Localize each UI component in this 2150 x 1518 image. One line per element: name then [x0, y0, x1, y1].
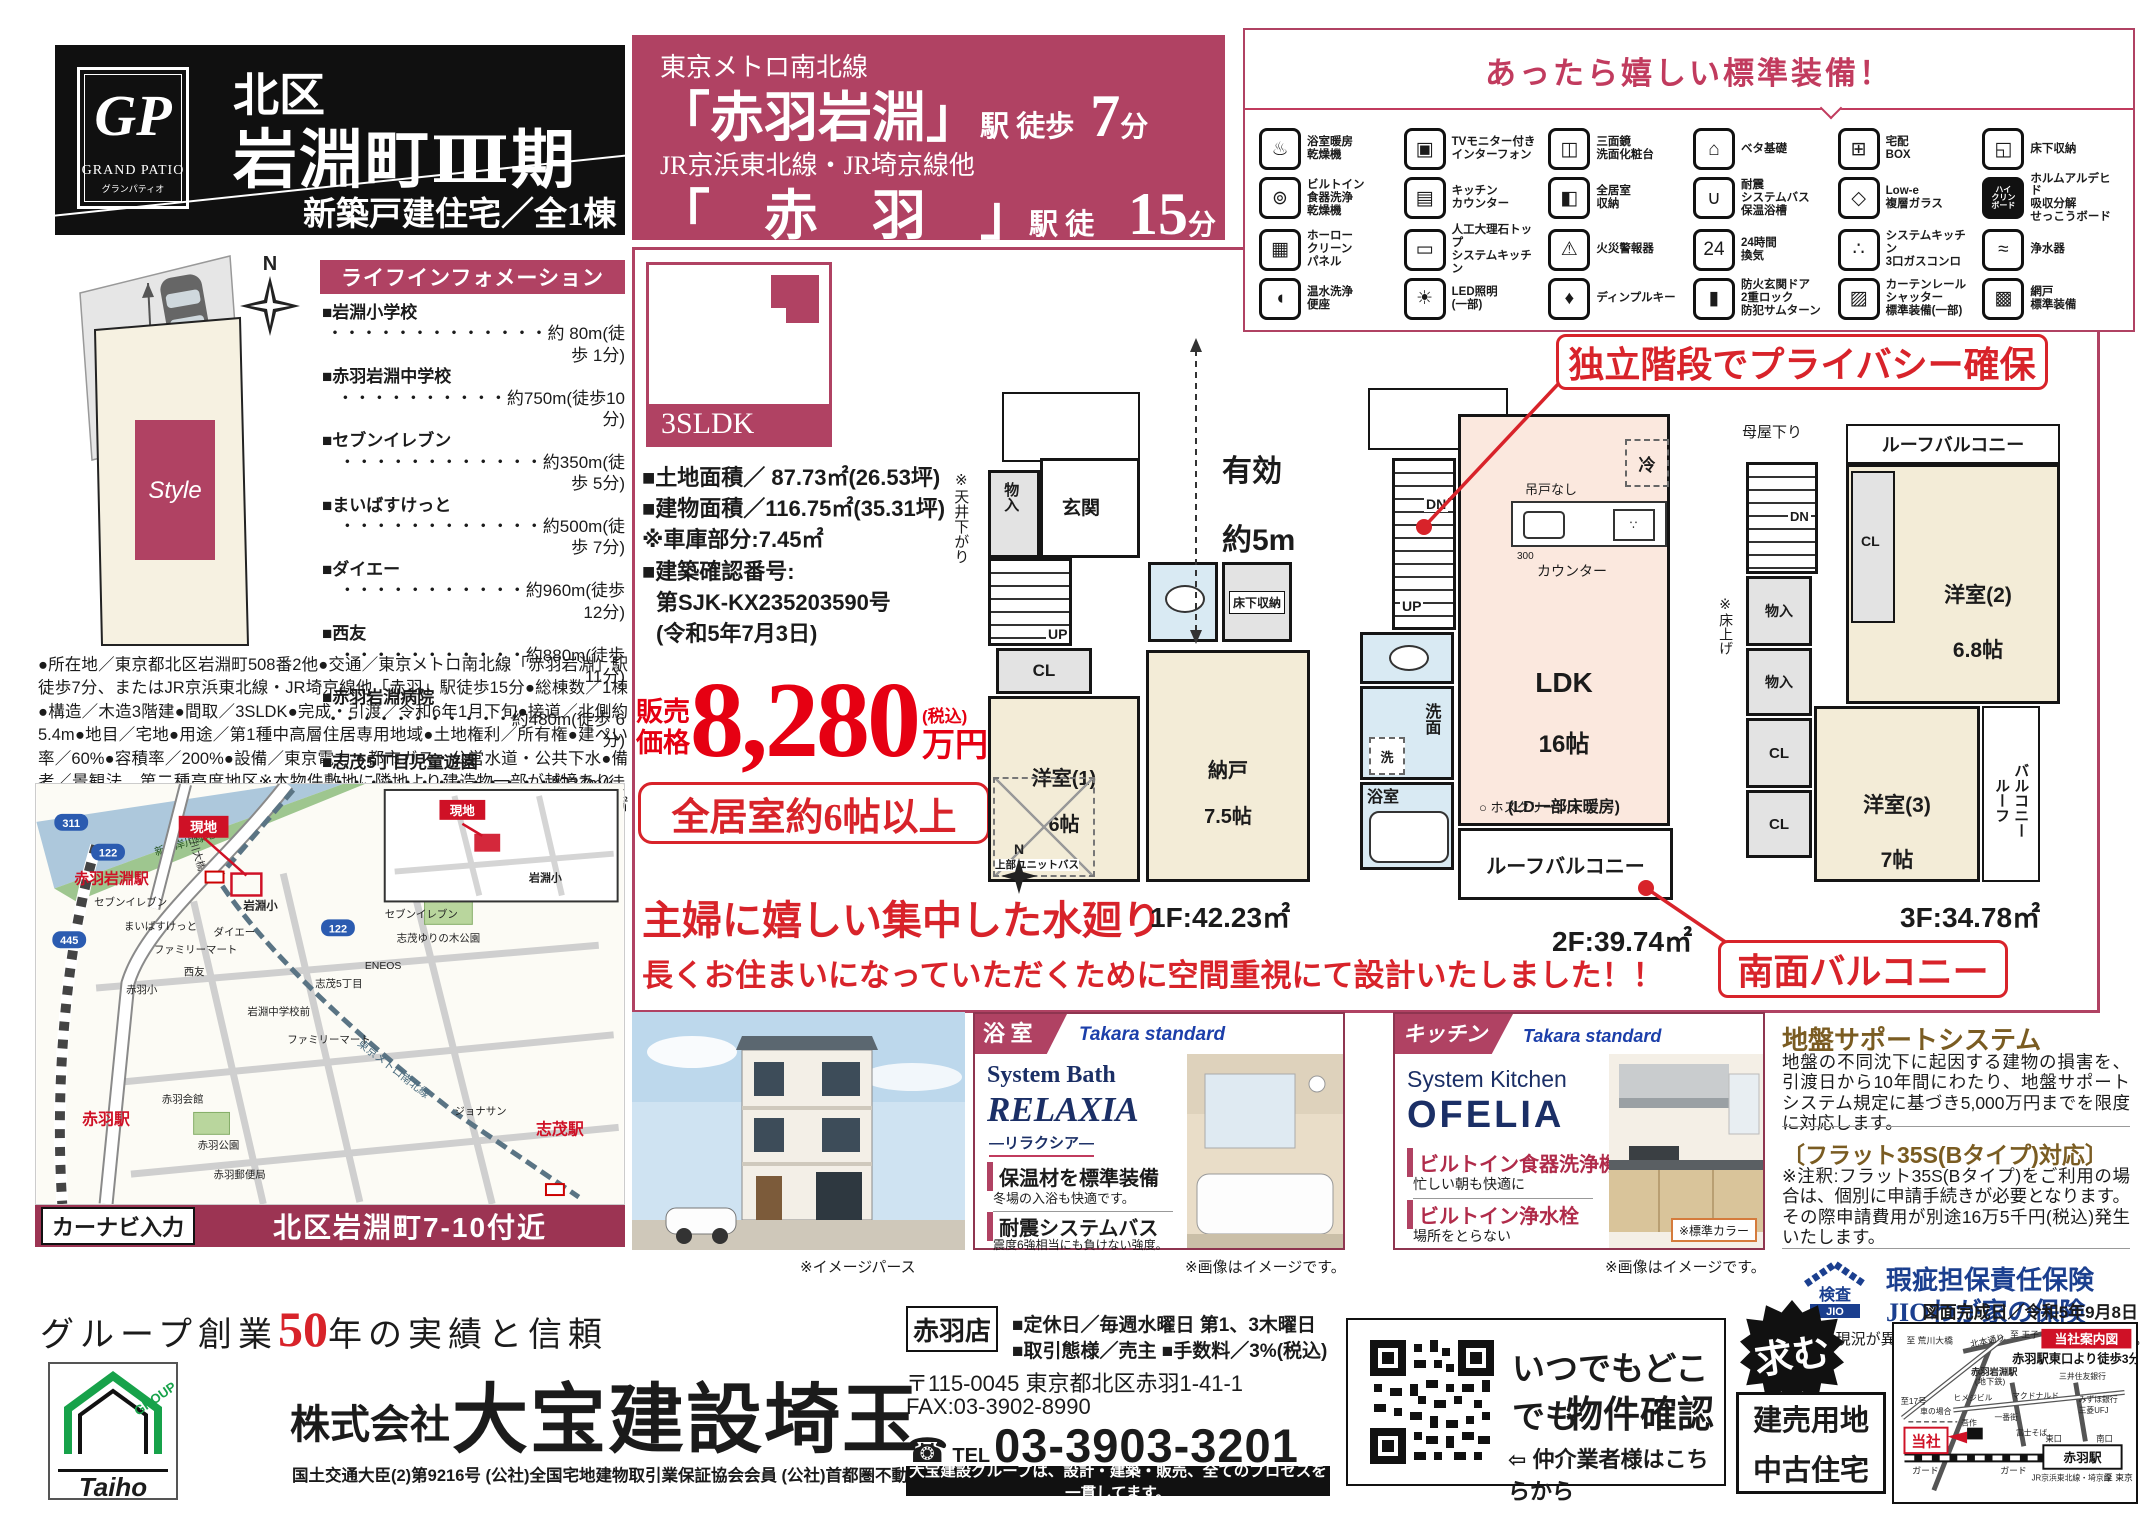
company-prefix: 株式会社 — [290, 1392, 450, 1450]
qr-code — [1366, 1336, 1498, 1468]
site-plan: 約5.4m公道 Style N — [70, 248, 320, 648]
f3-cl1-label: CL — [1769, 745, 1789, 762]
life-dist: ・・・・・・・・・・約750m(徒歩10分) — [322, 388, 625, 431]
price-tax: (税込) — [922, 708, 988, 727]
f2-hoscreen-label: ○ ホスクリーン ○ — [1479, 801, 1579, 816]
kitchen-feature-1-desc: 忙しい朝も快適に — [1413, 1174, 1593, 1199]
equipment-label: 床下収納 — [2030, 143, 2076, 156]
curtain-rail-shutter-icon: ▨ — [1838, 278, 1880, 320]
dimple-key-icon: ♦ — [1548, 278, 1590, 320]
equipment-label: 火災警報器 — [1596, 243, 1654, 256]
equipment-label: 宅配 BOX — [1886, 136, 1911, 162]
bath-feature-1: 保温材を標準装備 — [987, 1162, 1159, 1191]
navi-label: カーナビ入力 — [41, 1207, 195, 1245]
map-label: 赤羽岩淵駅 — [74, 870, 149, 888]
f3-dn-label: DN — [1788, 510, 1811, 525]
map-label: 志茂ゆりの木公園 — [397, 931, 481, 944]
equipment-label: システムキッチン 3口ガスコンロ — [1886, 230, 1977, 269]
map-label: ジョナサン — [454, 1105, 506, 1117]
cmap-spot: 至 王子 — [2010, 1330, 2039, 1340]
f3-cl-1: CL — [1746, 718, 1812, 788]
f3-roof-balcony-label: ルーフバルコニー — [1882, 431, 2025, 457]
equipment-label: ビルトイン 食器洗浄 乾燥機 — [1307, 179, 1365, 218]
taiho-logo: GROUP Taiho — [48, 1362, 178, 1500]
building-area: ■建物面積／116.75㎡(35.31坪) — [642, 493, 997, 524]
map-label: 現地 — [190, 819, 217, 835]
equip-label: Low-e 複層ガラス — [1886, 185, 1943, 211]
svg-text:122: 122 — [329, 923, 347, 935]
washlet-icon: ◖ — [1259, 278, 1301, 320]
f3-room3-label: 洋室(3) — [1863, 794, 1931, 817]
life-item: ■ダイエー・・・・・・・・・・・約960m(徒歩12分) — [322, 559, 625, 623]
bath-tag-label: 浴 室 — [983, 1021, 1033, 1046]
cmap-spot: 赤羽岩淵駅 — [1971, 1366, 2018, 1377]
map-label: 岩淵小 — [242, 898, 278, 912]
kitchen-color-note: ※標準カラー — [1671, 1218, 1757, 1242]
f3-room2-size: 6.8帖 — [1953, 639, 2003, 662]
life-item: ■まいばすけっと・・・・・・・・・・・・約500m(徒歩 7分) — [322, 495, 625, 559]
f2-dn-label: DN — [1424, 496, 1448, 512]
cmap-spot: マクドナルド — [2012, 1391, 2059, 1400]
access-unit2: 分 — [1188, 203, 1216, 243]
drawing-date-visible: 図面完成日／令和5年9月8日 — [1890, 1298, 2138, 1323]
delivery-box-icon: ⊞ — [1838, 128, 1880, 170]
access-walk1: 駅 徒歩 — [980, 103, 1074, 145]
equipment-label: キッチン カウンター — [1452, 185, 1510, 211]
map-label: ENEOS — [365, 961, 402, 972]
cmap-spot: 至 荒川大橋 — [1906, 1335, 1953, 1346]
gas-stove-icon: ∴ — [1838, 229, 1880, 271]
f2-tsurido-label: 吊戸なし — [1525, 483, 1577, 498]
privacy-annotation-label: 独立階段でプライバシー確保 — [1568, 336, 2035, 388]
f3-bedroom2: CL 洋室(2) 6.8帖 — [1846, 464, 2060, 704]
f2-roof-balcony: ルーフバルコニー — [1458, 828, 1673, 900]
f3-mono-2: 物入 — [1746, 648, 1812, 716]
map-label: 赤羽郵便局 — [214, 1168, 266, 1181]
equipment-title-notch — [1820, 97, 1843, 120]
bath-photo — [1187, 1054, 1343, 1248]
equipment-item: ∪耐震 システムバス 保温浴槽 — [1693, 173, 1832, 225]
low-e-glass-icon: ◇ — [1838, 177, 1880, 219]
equipment-item: ▮防火玄関ドア 2重ロック 防犯サムターン — [1693, 276, 1832, 323]
cmap-spot: 至17号 — [1901, 1396, 1927, 1406]
svg-text:445: 445 — [60, 935, 78, 947]
support-divider — [1782, 1126, 2130, 1127]
equipment-label: 温水洗浄 便座 — [1307, 286, 1353, 312]
bathtub-icon — [1369, 811, 1449, 863]
confirm-date: (令和5年7月3日) — [642, 618, 997, 649]
cmap-spot: JR京浜東北線・埼京線 — [2032, 1472, 2112, 1482]
confirm-number: 第SJK-KX235203590号 — [642, 587, 997, 618]
map-label: セブンイレブン — [385, 907, 458, 920]
ceiling-note: ※天井下がり — [952, 452, 969, 582]
map-label: 西友 — [184, 965, 205, 978]
access-station2: 「 赤 羽 」 — [656, 171, 1029, 250]
f2-roof-balcony-label: ルーフバルコニー — [1486, 850, 1644, 879]
toilet-icon — [1389, 645, 1429, 671]
equipment-item: ∴システムキッチン 3口ガスコンロ — [1838, 224, 1977, 276]
triple-mirror-vanity-icon: ◫ — [1548, 128, 1590, 170]
marble-top-kitchen-icon: ▭ — [1404, 229, 1446, 271]
support-body: 地盤の不同沈下に起因する建物の損害を、引渡日から10年間にわたり、地盤サポートシ… — [1782, 1052, 2130, 1133]
svg-text:122: 122 — [99, 848, 117, 860]
earthquake-bath-icon: ∪ — [1693, 177, 1735, 219]
screen-door-icon: ▩ — [1982, 278, 2024, 320]
life-info-header: ライフインフォメーション — [320, 260, 625, 294]
kitchen-name: OFELIA — [1407, 1094, 1564, 1137]
price-unit: 万円 — [922, 727, 988, 763]
f3-balcony: ルーフ バルコニー — [1982, 706, 2040, 882]
equipment-label: 全居室 収納 — [1596, 185, 1631, 211]
f1-underfloor-label: 床下収納 — [1229, 591, 1285, 614]
equipment-label: 網戸 標準装備 — [2030, 286, 2076, 312]
f3-mono2-label: 物入 — [1765, 672, 1793, 692]
cmap-spot: 一番街 — [1994, 1412, 2018, 1422]
kitchen-feature-1: ビルトイン食器洗浄機 — [1407, 1148, 1619, 1177]
map-label: ダイエー — [214, 925, 256, 938]
qr-text-2: 物件確認 — [1566, 1384, 1714, 1438]
kitchen-tag-label: キッチン — [1403, 1022, 1487, 1046]
map-label: 赤羽駅 — [82, 1109, 130, 1128]
equipment-label: ホルムアルデヒド 吸収分解 せっこうボード — [2030, 173, 2121, 225]
equipment-label: 三面鏡 洗面化粧台 — [1596, 136, 1654, 162]
f1-up-label: UP — [1046, 626, 1069, 642]
motomu-label: 求む — [1751, 1319, 1834, 1384]
access-min2: 15 — [1128, 180, 1188, 249]
equipment-label: TVモニター付き インターフォン — [1452, 136, 1536, 162]
f2-washer: 洗 — [1369, 737, 1405, 775]
land-area: ■土地面積／ 87.73㎡(26.53坪) — [642, 462, 997, 493]
bath-kana: ―リラクシア― — [989, 1132, 1094, 1157]
f1-nando-size: 7.5帖 — [1204, 806, 1252, 828]
footer-bar-text: 大宝建設グループは、設計・建築・販売、全てのプロセスを一貫してます。 — [906, 1459, 1330, 1503]
life-name: ■西友 — [322, 623, 625, 644]
cmap-spot: ガード — [2000, 1466, 2026, 1476]
f3-bedroom3: 洋室(3) 7帖 — [1814, 706, 1980, 882]
render-caption: ※イメージパース — [800, 1256, 916, 1277]
equipment-item: ◇Low-e 複層ガラス — [1838, 173, 1977, 225]
svg-text:N: N — [263, 253, 277, 275]
map-label: 現地 — [450, 803, 475, 818]
equipment-item: ▩網戸 標準装備 — [1982, 276, 2121, 323]
plan-type-label: 3SLDK — [649, 404, 829, 444]
equipment-label: ディンプルキー — [1596, 292, 1675, 305]
cmap-spot: 車の場合 — [1920, 1406, 1951, 1416]
kitchen-counter-icon: ▤ — [1404, 177, 1446, 219]
map-label: 赤羽公園 — [198, 1139, 240, 1151]
equipment-item: ⊚ビルトイン 食器洗浄 乾燥機 — [1259, 173, 1398, 225]
cmap-spot: (地下鉄) — [1975, 1377, 2006, 1387]
f3-area-label: 3F:34.78㎡ — [1900, 896, 2040, 936]
f2-washroom-label: 洗面 — [1421, 703, 1439, 735]
f1-mono-label: 物入 — [1002, 482, 1019, 512]
cmap-title: 当社案内図 — [2055, 1332, 2119, 1347]
map-label: 志茂駅 — [536, 1119, 584, 1138]
south-balcony-annotation: 南面バルコニー — [1718, 940, 2008, 998]
equipment-label: 耐震 システムバス 保温浴槽 — [1741, 179, 1810, 218]
equipment-item: ◱床下収納 — [1982, 126, 2121, 173]
gas-stove-icon: ∵ — [1613, 509, 1655, 541]
effective-width-arrow — [1180, 336, 1220, 646]
area-map: 新河岸川緑地 新荒川大橋 東京メトロ南北線 現地 — [35, 783, 625, 1205]
plan-type-box: 3SLDK — [646, 262, 832, 447]
map-inset — [385, 790, 618, 901]
kitchen-feature-2: ビルトイン浄水栓 — [1407, 1200, 1579, 1229]
life-name: ■ダイエー — [322, 559, 625, 580]
dishwasher-icon: ⊚ — [1259, 177, 1301, 219]
slogan-num: 50 — [278, 1301, 328, 1357]
fire-alarm-icon: ⚠ — [1548, 229, 1590, 271]
f3-cl2-label: CL — [1769, 816, 1789, 833]
equipment-label: 浄水器 — [2030, 243, 2065, 256]
offer-details: ■土地面積／ 87.73㎡(26.53坪) ■建物面積／116.75㎡(35.3… — [642, 462, 997, 649]
cmap-walk: 赤羽駅東口より徒歩3分 — [2012, 1351, 2138, 1366]
equipment-item: ⊞宅配 BOX — [1838, 126, 1977, 173]
slogan-pre: グループ創業 — [40, 1317, 278, 1354]
equipment-label: 防火玄関ドア 2重ロック 防犯サムターン — [1741, 279, 1821, 318]
cmap-spot: 当社 — [1911, 1432, 1941, 1450]
map-park — [194, 1112, 230, 1134]
title-subtitle: 新築戸建住宅／全1棟 — [303, 187, 617, 235]
land-wanted-box: 建売用地 中古住宅 — [1736, 1392, 1886, 1494]
map-label: ファミリーマート — [154, 945, 238, 956]
land-wanted-2: 中古住宅 — [1753, 1447, 1869, 1489]
equipment-label: 24時間 換気 — [1741, 237, 1777, 263]
company-name: 大宝建設埼玉 — [452, 1358, 920, 1468]
f3-cl3-label: CL — [1861, 533, 1880, 549]
equipment-item: ▣TVモニター付き インターフォン — [1404, 126, 1543, 173]
life-name: ■セブンイレブン — [322, 430, 625, 451]
equipment-grid: ♨浴室暖房 乾燥機 ▣TVモニター付き インターフォン ◫三面鏡 洗面化粧台 ⌂… — [1259, 126, 2121, 322]
bath-caption: ※画像はイメージです。 — [1185, 1256, 1346, 1277]
price-block: 販売 価格 8,280 (税込) 万円 — [636, 648, 1006, 773]
effective-width-2: 約5m — [1222, 524, 1295, 557]
svg-text:N: N — [1014, 841, 1024, 857]
cmap-spot: ヒメジビル — [1953, 1393, 1992, 1402]
cmap-spot: 吾作 — [1961, 1418, 1977, 1428]
equipment-label: ベタ基礎 — [1741, 143, 1787, 156]
f1-cl-label: CL — [1033, 661, 1056, 681]
equipment-item: ▦ホーロー クリーン パネル — [1259, 224, 1398, 276]
access-unit1: 分 — [1120, 105, 1148, 145]
equipment-item: ▨カーテンレール シャッター 標準装備(一部) — [1838, 276, 1977, 323]
f2-counter-label: カウンター — [1537, 563, 1607, 579]
f2-bathroom-label: 浴室 — [1367, 789, 1399, 807]
svg-text:311: 311 — [62, 818, 80, 830]
equipment-title: あったら嬉しい標準装備！ — [1245, 40, 2133, 100]
underfloor-storage-icon: ◱ — [1982, 128, 2024, 170]
f2-toilet — [1360, 632, 1454, 684]
kitchen-caption: ※画像はイメージです。 — [1605, 1256, 1766, 1277]
map-inset-lot — [474, 834, 500, 852]
equipment-item: ⚠火災警報器 — [1548, 224, 1687, 276]
f3-moya-label: 母屋下り — [1742, 424, 1802, 441]
bath-feature-1-desc: 冬場の入浴も快適です。 — [993, 1188, 1173, 1212]
bath-name: RELAXIA — [987, 1090, 1139, 1130]
all-rooms-storage-icon: ◧ — [1548, 177, 1590, 219]
equipment-item: ハイ クリン ボードホルムアルデヒド 吸収分解 せっこうボード — [1982, 173, 2121, 225]
f1-storeroom: 納戸 7.5帖 — [1146, 650, 1310, 882]
cmap-spot: ガード — [1912, 1466, 1938, 1476]
f2-washer-label: 洗 — [1380, 747, 1393, 766]
flat35-title: 〔フラット35S(Bタイプ)対応〕 — [1782, 1136, 2108, 1170]
effective-width-1: 有効 — [1222, 455, 1282, 488]
f1-underfloor-storage: 床下収納 — [1222, 562, 1292, 642]
bath-panel: 浴 室 Takara standard System Bath RELAXIA … — [973, 1012, 1345, 1250]
equipment-item: ♨浴室暖房 乾燥機 — [1259, 126, 1398, 173]
equipment-label: カーテンレール シャッター 標準装備(一部) — [1886, 279, 1967, 318]
life-dist: ・・・・・・・・・・・・・約 80m(徒歩 1分) — [322, 323, 625, 366]
kitchen-sink-icon — [1523, 511, 1565, 539]
f2-kitchen-counter: ∵ — [1511, 501, 1667, 547]
equipment-item: ▤キッチン カウンター — [1404, 173, 1543, 225]
life-dist: ・・・・・・・・・・・・約500m(徒歩 7分) — [322, 516, 625, 559]
f2-area-label: 2F:39.74㎡ — [1552, 920, 1692, 960]
equipment-item: ▭人工大理石トップ システムキッチン — [1404, 224, 1543, 276]
life-name: ■岩淵小学校 — [322, 302, 625, 323]
compass-icon: N — [240, 253, 300, 336]
equipment-item: ≈浄水器 — [1982, 224, 2121, 276]
qr-text-3: ⇦ 仲介業者様はこちらから — [1508, 1442, 1724, 1506]
map-label: 岩淵中学校前 — [247, 1005, 310, 1018]
cmap-spot: 赤羽駅 — [2063, 1450, 2101, 1465]
life-dist: ・・・・・・・・・・・約960m(徒歩12分) — [322, 580, 625, 623]
f3-room2-label: 洋室(2) — [1944, 584, 2012, 607]
equipment-item: ☀LED照明 (一部) — [1404, 276, 1543, 323]
water-purifier-icon: ≈ — [1982, 229, 2024, 271]
equipment-item: ◫三面鏡 洗面化粧台 — [1548, 126, 1687, 173]
bath-tag: 浴 室 — [975, 1014, 1067, 1054]
catch-line-1: 主婦に嬉しい集中した水廻り — [642, 888, 1162, 946]
equipment-item: ◧全居室 収納 — [1548, 173, 1687, 225]
cmap-spot: 三井住友銀行 — [2059, 1371, 2106, 1381]
rooms-badge-label: 全居室約6帖以上 — [671, 786, 956, 841]
hi-clean-board-icon: ハイ クリン ボード — [1982, 177, 2024, 219]
land-wanted-1: 建売用地 — [1753, 1397, 1869, 1439]
company-map: 当社案内図 赤羽駅東口より徒歩3分 至 荒川大橋 北本通り 至 王子 赤羽岩淵駅… — [1892, 1322, 2138, 1504]
rooms-badge: 全居室約6帖以上 — [638, 782, 990, 844]
life-name: ■赤羽岩淵中学校 — [322, 366, 625, 387]
qr-panel: いつでもどこでも 物件確認 ⇦ 仲介業者様はこちらから — [1346, 1318, 1726, 1486]
life-info-list: ■岩淵小学校・・・・・・・・・・・・・約 80m(徒歩 1分) ■赤羽岩淵中学校… — [322, 302, 625, 647]
kitchen-panel: キッチン Takara standard System Kitchen OFEL… — [1393, 1012, 1765, 1250]
garage-area: ※車庫部分:7.45㎡ — [642, 524, 997, 555]
f3-room3-size: 7帖 — [1881, 849, 1914, 872]
life-item: ■セブンイレブン・・・・・・・・・・・・約350m(徒歩 5分) — [322, 430, 625, 494]
f3-cl-2: CL — [1746, 790, 1812, 858]
price-label-1: 販売 — [636, 697, 690, 728]
life-item: ■岩淵小学校・・・・・・・・・・・・・約 80m(徒歩 1分) — [322, 302, 625, 366]
f3-balcony-label-2: バルコニー — [2012, 720, 2029, 880]
title-panel: GP GRAND PATIO グランパティオ 北区 岩淵町Ⅲ期 新築戸建住宅／全… — [55, 45, 625, 235]
price-amount: 8,280 — [690, 670, 918, 773]
led-light-icon: ☀ — [1404, 278, 1446, 320]
map-label: 赤羽会館 — [162, 1092, 204, 1105]
f2-dim-300: 300 — [1517, 551, 1534, 563]
south-balcony-label: 南面バルコニー — [1737, 943, 1988, 995]
gp-logo-kana: グランパティオ — [80, 182, 186, 194]
shop-fax: FAX:03-3902-8990 — [906, 1394, 1091, 1420]
jio-label: JIO — [1826, 1306, 1844, 1318]
access-station1: 「赤羽岩淵」 — [656, 73, 980, 152]
life-item: ■赤羽岩淵中学校・・・・・・・・・・約750m(徒歩10分) — [322, 366, 625, 430]
hoscreen-text: ホスクリーン — [1490, 800, 1567, 815]
slab-foundation-icon: ⌂ — [1693, 128, 1735, 170]
equipment-label: 浴室暖房 乾燥機 — [1307, 136, 1353, 162]
f2-ldk: 冷 吊戸なし ∵ 300 カウンター LDK 16帖 (LD一部床暖房) ○ ホ… — [1458, 414, 1670, 826]
f1-genkan-label: 玄関 — [1062, 498, 1100, 520]
f3-mono1-label: 物入 — [1765, 601, 1793, 621]
gp-logo-letters: GP — [80, 78, 186, 152]
map-label: セブンイレブン — [94, 895, 167, 908]
shop-badge: 赤羽店 — [906, 1306, 998, 1352]
life-dist: ・・・・・・・・・・・・約350m(徒歩 5分) — [322, 452, 625, 495]
f2-washroom: 洗面 洗 — [1360, 686, 1454, 780]
cmap-spot: みずほ銀行 — [2079, 1394, 2118, 1404]
f1-compass-icon: N — [996, 840, 1042, 898]
equipment-title-rule — [1245, 108, 2133, 110]
f1-porch — [1002, 392, 1140, 462]
price-label-2: 価格 — [636, 728, 690, 759]
equipment-item: ⌂ベタ基礎 — [1693, 126, 1832, 173]
life-name: ■まいばすけっと — [322, 495, 625, 516]
equipment-label: 人工大理石トップ システムキッチン — [1452, 224, 1543, 276]
map-label: 岩淵小 — [528, 871, 562, 885]
equipment-panel: あったら嬉しい標準装備！ ♨浴室暖房 乾燥機 ▣TVモニター付き インターフォン… — [1243, 28, 2135, 332]
equipment-label: ホーロー クリーン パネル — [1307, 230, 1353, 269]
kitchen-feature-2-desc: 場所をとらない — [1413, 1226, 1511, 1246]
kitchen-tag: キッチン — [1395, 1014, 1513, 1054]
cmap-spot: 富士そば — [2016, 1427, 2047, 1437]
bathroom-heater-dryer-icon: ♨ — [1259, 128, 1301, 170]
f3-balcony-label-1: ルーフ — [1993, 720, 2010, 880]
navi-address: 北区岩淵町7-10付近 — [195, 1206, 625, 1246]
f2-fridge: 冷 — [1625, 439, 1669, 487]
f2-bathroom: 浴室 — [1360, 782, 1454, 870]
bath-feature-2-desc: 震度6強相当にも負けない強度。 — [993, 1236, 1168, 1253]
f3-mono-1: 物入 — [1746, 576, 1812, 646]
f3-roof-balcony: ルーフバルコニー — [1846, 424, 2060, 464]
navi-bar: カーナビ入力 北区岩淵町7-10付近 — [35, 1205, 625, 1247]
footer-black-bar: 大宝建設グループは、設計・建築・販売、全てのプロセスを一貫してます。 — [906, 1466, 1330, 1496]
f3-floor-raised-note: ※床上げ — [1718, 566, 1734, 686]
kitchen-series: System Kitchen — [1407, 1066, 1567, 1093]
site-style-label: Style — [148, 477, 201, 504]
equipment-item: ◖温水洗浄 便座 — [1259, 276, 1398, 323]
map-label: 赤羽小 — [126, 984, 158, 996]
map-label: ファミリーマート — [287, 1035, 371, 1046]
shop-terms: ■取引態様／売主 ■手数料／3%(税込) — [1012, 1336, 1327, 1363]
flyer-page: GP GRAND PATIO グランパティオ 北区 岩淵町Ⅲ期 新築戸建住宅／全… — [0, 0, 2150, 1518]
enamel-panel-icon: ▦ — [1259, 229, 1301, 271]
fire-door-icon: ▮ — [1693, 278, 1735, 320]
footer-slogan: グループ創業50年の実績と信頼 — [40, 1300, 608, 1358]
cmap-spot: 南口 — [2096, 1433, 2113, 1443]
f3-bedroom2-closet: CL — [1851, 471, 1895, 623]
support-divider-2 — [1782, 1248, 2130, 1249]
f2-ldk-label: LDK — [1535, 667, 1593, 698]
access-min1: 7 — [1090, 82, 1120, 151]
slogan-post: 年の実績と信頼 — [328, 1317, 608, 1354]
ventilation-24h-icon: 24 — [1693, 229, 1735, 271]
gp-logo: GP GRAND PATIO グランパティオ — [77, 67, 189, 209]
plan-type-mark — [771, 275, 819, 323]
map-label: まいばすけっと — [124, 920, 197, 932]
bath-series: System Bath — [987, 1062, 1116, 1089]
f1-closet-cl: CL — [996, 648, 1092, 694]
flat35-body: ※注釈:フラット35S(Bタイプ)をご利用の場合は、個別に申請手続きが必要となり… — [1782, 1166, 2130, 1247]
f2-fridge-label: 冷 — [1639, 451, 1656, 476]
